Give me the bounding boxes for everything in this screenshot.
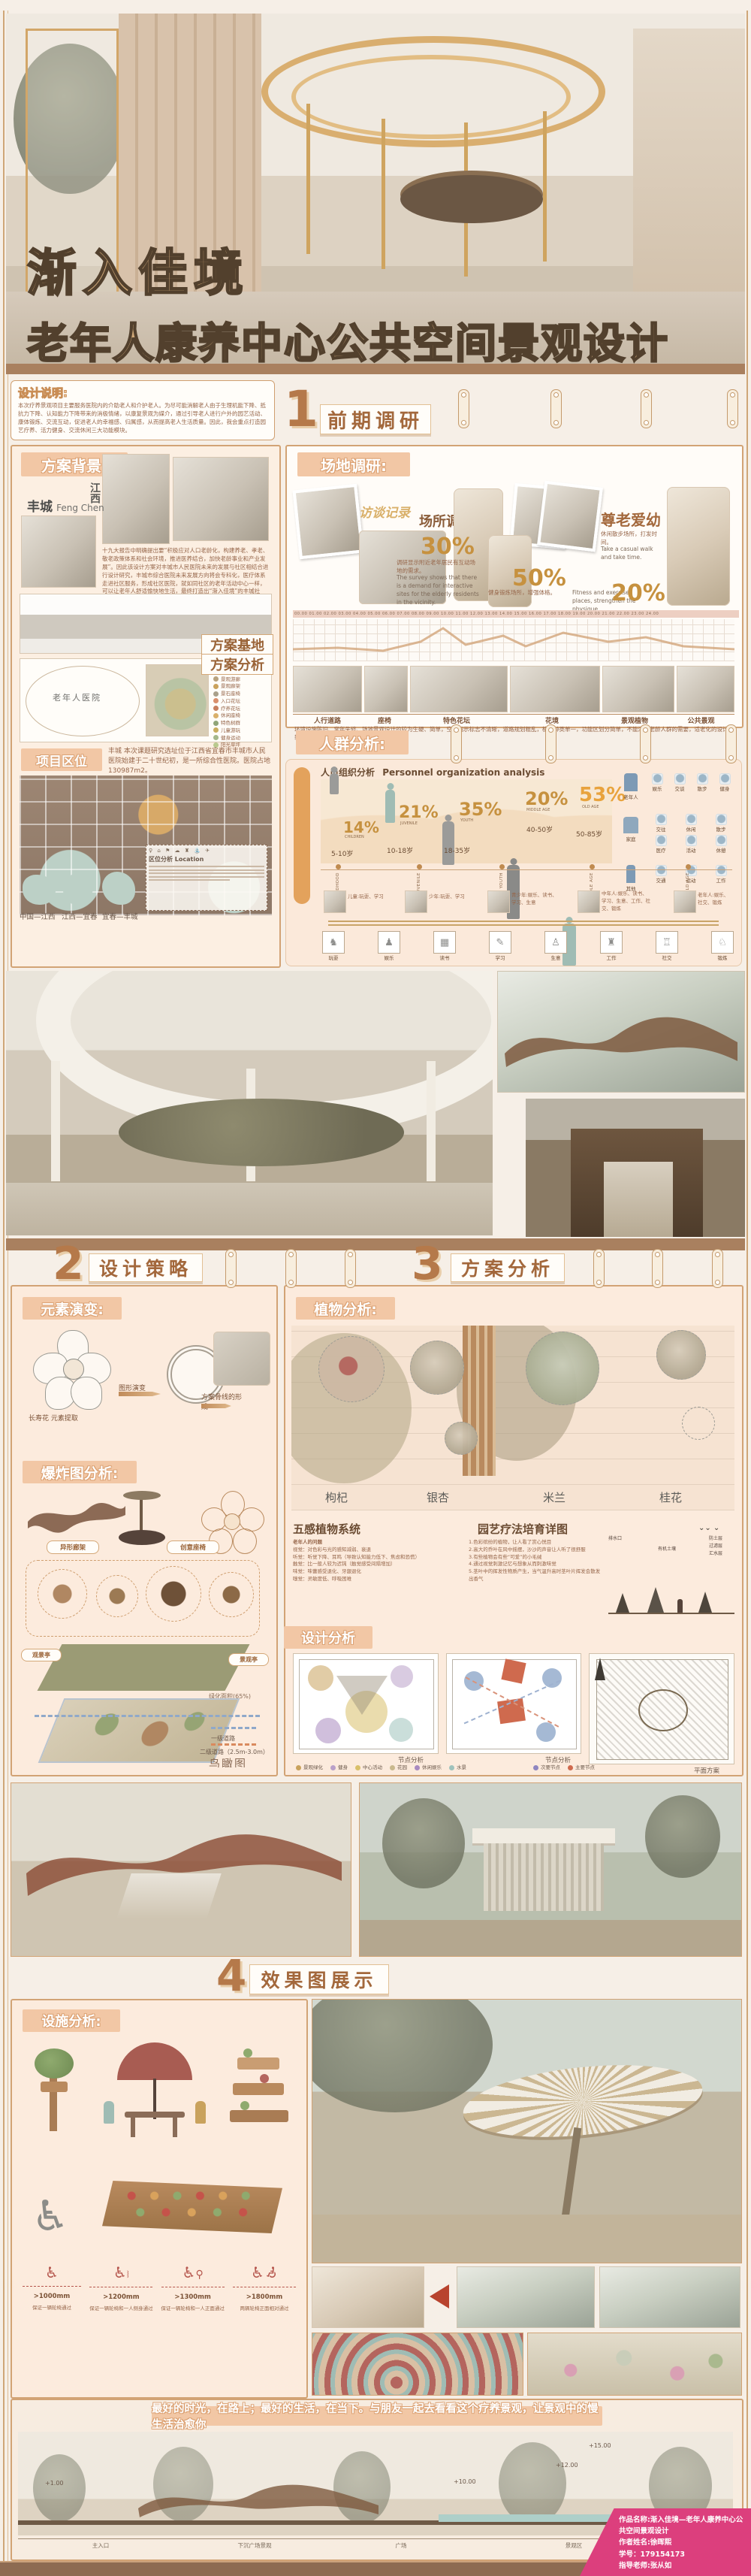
therapy-label: 防土层 [709,1534,722,1541]
strip-photo [364,666,408,712]
crowd-analysis-card: 人员组织分析 Personnel organization analysis 1… [285,759,742,966]
tree-glyph [647,1587,664,1613]
legend-text-lines [149,866,264,881]
flower-sketch [33,1330,111,1408]
senses-line: 触觉：比一般人较为迟钝（触觉感受间隔增加） [293,1561,463,1568]
two-wheelchair-icons: ♿♿ [230,2265,299,2281]
senses-line: 5.茎叶中的挥发性物质产生，当气温升高时茎叶片挥发会散发出香气 [469,1568,604,1583]
plan-caption-3: 平面方案 [694,1766,719,1775]
plaza-ground [312,2215,741,2263]
stage-en: YOUTH [499,872,504,888]
access-diagram-2: ♿⧘ >1200mm 保证一辆轮椅和一人侧身通过 [86,2265,155,2385]
section1-title: 前期调研 [320,404,431,434]
hero-planter [400,175,543,223]
icon-group-elderly: 老年人 [621,773,641,800]
divider-band [6,1238,745,1250]
activity-icon-cell: 活动 [677,835,705,854]
strap-decoration [345,1249,356,1288]
senses-left: 老年人的问题 视觉：对色彩与光的感知减弱、衰退 听觉：听觉下降、耳鸣（导致认知能… [293,1539,463,1583]
road-sample-2 [211,1743,256,1746]
render-thumb [599,2266,740,2328]
stage-desc: 少年:玩耍、学习 [429,893,471,901]
tree [382,1798,465,1888]
group-age: 50-85岁 [576,829,602,839]
site-plan-thumb [146,664,209,736]
province-label: 江西 [87,482,102,503]
group-age: 40-50岁 [526,824,553,834]
access-caption: 两辆轮椅正面相对通过 [230,2305,299,2313]
region-caption: 中国—江西 [20,911,56,921]
garden-thumb [312,2266,424,2328]
access-caption: 保证一辆轮椅和一人正面通过 [158,2305,228,2313]
strap-decoration [451,724,462,763]
plant-analysis-label: 植物分析: [296,1297,395,1320]
activity-icon-cell: 娱乐 [647,773,668,792]
interview-photo [292,484,363,559]
plant-photo-goji [318,1336,385,1402]
strap-decoration [545,724,556,763]
legend-item: 健身运动 [213,735,270,742]
elev-label: 广场 [326,2541,476,2550]
activity-icon-cell: 交谈 [669,773,690,792]
stage-dot [499,864,505,869]
location-label: 项目区位 [21,748,102,771]
left-arrow [430,2284,449,2308]
exploded-node [146,1566,201,1622]
figure-youth [442,821,454,865]
courtyard-floor [6,1183,493,1235]
strip-photo [677,666,734,712]
age-wave-band: 14% CHILDREN 5-10岁 21% JUVENILE 10-18岁 3… [321,779,612,863]
credit-advisor: 指导老师:张从如 [619,2560,745,2571]
poster-title-block: 渐入佳境 老年人康养中心公共空间景观设计 Gradually enter bli… [27,233,725,374]
senses-line: 3.有些植物会有些“可爱”的小毛绒 [469,1554,604,1562]
plant-name: 米兰 [494,1489,614,1505]
stat-20-zh: 休闲散步场所，打发时间。 [601,531,665,547]
poster-title-line1: 渐入佳境 [27,233,725,305]
courtyard-garden [119,1099,404,1166]
scheme-background-panel: 方案背景: 丰城 Feng Chen 江西 十九大报告中明确提出要“积极应对人口… [11,445,281,968]
social-icon [656,814,667,825]
therapy-label: 汇水层 [709,1550,722,1556]
street-photo [537,481,603,552]
fun-icon: ♟ [378,931,400,954]
site-survey-label: 场地调研: [297,452,410,476]
facility-panel: 设施分析: ♿ [11,1999,308,2399]
stage-dot [417,864,422,869]
zone-item: 中心活动 [355,1763,382,1770]
pavilion-label-2: 景观亭 [228,1653,269,1666]
zone-item: 健身 [330,1763,348,1770]
activity-icon-cell: 健身 [714,773,735,792]
legend-item: 景石座椅 [213,691,270,698]
activity-item: ♜工作 [600,931,623,961]
ground-line [608,1613,734,1614]
group-pct: 21% [399,803,439,822]
credit-author: 作者姓名:徐晖熙 [619,2537,745,2548]
icon-group-family: 家庭 [621,817,641,842]
birdseye-label: 鸟瞰图 [209,1755,247,1767]
stat-50-pct: 50% [512,565,566,591]
legend-item: 休闲座椅 [213,712,270,720]
strip-labels: 人行道路 座椅 特色花坛 花境 景观植物 公共景观 [293,715,734,725]
stat-50-zh: 健身锻炼场所，增强体格。 [488,589,571,597]
stage-desc: 青少年:娱乐、读书、学习、生意 [511,892,558,907]
senses-line: 1.色彩缤纷的植物，让人看了赏心悦目 [469,1539,604,1547]
stage-photo [324,890,346,913]
plan-analysis-panel: 植物分析: 枸杞 银杏 米兰 桂花 五感植物系统 老年人的问题 视觉：对色彩与光… [284,1285,743,1776]
strip-photo [602,666,674,712]
activity-icon-cell: 散步 [707,814,735,833]
zone-legend: 景观绿化 健身 中心活动 花园 休闲娱乐 水景 [296,1763,466,1770]
senses-line: 4.通过视觉刺激记忆与想象从而刺激味觉 [469,1561,604,1568]
design-note-label: 设计说明: [18,385,267,401]
plant-photo-milan [526,1332,599,1405]
activity-icon-cell: 交往 [647,814,675,833]
stage-desc: 儿童:玩耍、学习 [348,893,390,901]
wheelchair-vignette: ♿ [27,2154,95,2251]
stat-30-en: The survey shows that there is a demand … [397,574,481,607]
activity-item: ♟娱乐 [378,931,400,961]
primary-road [35,1715,260,1717]
activity-item: ♞玩耍 [322,931,345,961]
node-plan-1 [293,1653,439,1754]
section1-number: 1 [284,385,318,434]
section3-number: 3 [412,1241,443,1286]
plant-photo-ginkgo [410,1341,464,1395]
parasol-top [123,1491,161,1500]
birdseye-block: 观景亭 景观亭 绿化面积(65%) 一级道路 二级道路（2.5m-3.0m） 鸟… [20,1643,269,1767]
leisure-icon [686,814,697,825]
strap-decoration [727,389,738,428]
dimension-line [89,2287,152,2287]
figure-juvenile [385,790,395,823]
site-photo [21,516,96,588]
axon-layer [38,1644,250,1691]
strap-decoration [712,1249,723,1288]
zone-item: 水景 [449,1763,466,1770]
stat-20-pct: 20% [611,580,665,606]
plant-names: 枸杞 银杏 米兰 桂花 [291,1489,734,1505]
pavilion-label-1: 观景亭 [21,1649,62,1661]
strip-photo [293,666,362,712]
skeleton-plan-sketch [213,1332,270,1386]
event-icon [686,835,697,846]
business-icon: ♙ [544,931,567,954]
hero-pergola-ring-inner [291,55,571,139]
group-en: YOUTH [460,818,473,823]
legend-item: 入口花坛 [213,698,270,706]
site-photo [173,457,269,541]
level-mark: +1.00 [45,2480,64,2487]
play-icon: ♞ [322,931,345,954]
senses-line: 听觉：听觉下降、耳鸣（导致认知能力低下、焦虑和恐慌） [293,1554,463,1562]
red-pergola-shape [11,1783,351,1956]
poster-root: 渐入佳境 老年人康养中心公共空间景观设计 Gradually enter bli… [0,0,751,2576]
stage-photo [405,890,427,913]
access-caption: 保证一辆轮椅通过 [20,2305,84,2312]
strap-decoration [458,389,469,428]
wavy-bench-shape [497,971,745,1093]
activity-graph-line [293,619,734,661]
strip-label: 人行道路 [293,715,362,725]
dimension-line [161,2287,225,2287]
region-shape-jiangxi [63,873,93,905]
canopy-render [312,1999,742,2263]
region-shape-china [23,875,56,905]
rest-icon [716,835,727,846]
group-pct: 35% [459,799,502,820]
entertain-icon [652,773,663,785]
site-photo [102,454,170,544]
stage-photo [578,890,600,913]
interview-label: 访谈记录 [359,502,410,521]
hero-render: 渐入佳境 老年人康养中心公共空间景观设计 Gradually enter bli… [6,14,745,374]
strategy-panel: 元素演变: 长寿花 元素提取 图形演变 方案骨线的形成 爆炸图分析: [11,1285,278,1776]
empty-circle [682,1407,715,1440]
region-caption: 宜春—丰城 [102,911,138,921]
parasol-pole [140,1494,143,1534]
strap-decoration [550,389,562,428]
birds-glyph: ⌄⌄ ⌄ [698,1524,719,1532]
chat-icon [674,773,686,785]
therapy-label: 排水口 [608,1534,622,1541]
elev-label: 主入口 [18,2541,183,2550]
road1-label: 一级道路 [211,1734,235,1743]
activity-item: ♙生意 [544,931,567,961]
senses-title: 五感植物系统 [293,1521,360,1537]
strip-label: 景观植物 [598,715,671,725]
region-caption: 江西—宜春 [62,911,98,921]
activity-icon-cell: 医疗 [647,835,675,854]
location-legend-box: ♀ ⌂ ⚑ ☁ ♜ ⛲ ✈ 区位分析 Location [146,845,267,911]
strip-label: 公共景观 [671,715,731,725]
bubble-center-label: 老年人医院 [53,691,101,703]
tree-glyph [616,1593,629,1613]
flower-garden-render [527,2333,742,2396]
road-sample-1 [211,1727,256,1729]
step3-caption: 方案骨线的形成 [201,1392,246,1411]
walk-icon [697,773,708,785]
access-dim: >1000mm [20,2293,84,2300]
exploded-node [38,1569,87,1619]
strip-photo [510,666,600,712]
strap-decoration [641,389,652,428]
base-label: 方案基地 [201,634,273,655]
crowd-analysis-label: 人群分析: [296,730,409,754]
courtyard-column [51,1061,60,1181]
hero-bottom-band [6,364,745,374]
plant-photo-small [445,1422,478,1455]
facility-analysis-label: 设施分析: [23,2009,120,2032]
plant-name: 银杏 [382,1489,494,1505]
strap-decoration [593,1249,605,1288]
site-photo-strip [293,666,734,712]
step1-caption: 长寿花 元素提取 [29,1413,78,1423]
site-survey-panel: 场地调研: 访谈记录 场所调研 30% 调研显示附近老年居民有互动场地的需求。 … [285,445,743,728]
org-analysis-title: 人员组织分析 Personnel organization analysis [321,766,544,779]
group-pct: 14% [343,818,379,836]
ribbed-canopy [460,2055,706,2148]
flow-connector [328,924,719,926]
wheelchair-icon: ♿ [20,2265,84,2280]
family-icon [623,817,638,833]
stage-photo [487,890,510,913]
level-mark: +15.00 [589,2442,611,2449]
flow-connector [328,921,719,922]
render-thumb [457,2266,595,2328]
zone-item: 休闲娱乐 [415,1763,442,1770]
group-pct: 20% [525,788,568,809]
bench-render [497,971,745,1093]
activity-item: ♘锻炼 [711,931,734,961]
umbrella-vignette [95,2042,215,2140]
tree-glyph [698,1592,712,1613]
elderly-activity-icons: 娱乐 交谈 散步 健身 [647,773,735,792]
study-icon: ✎ [489,931,511,954]
activity-icon-cell: 散步 [692,773,713,792]
strap-decoration [652,1249,663,1288]
stage-desc: 老年人:娱乐、社交、锻炼 [698,892,732,907]
left-frame-line [3,11,5,2561]
access-diagram-1: ♿ >1000mm 保证一辆轮椅通过 [20,2265,84,2385]
analysis-label: 方案分析 [201,654,273,675]
group-en: CHILDREN [345,835,364,839]
activity-row: ♞玩耍 ♟娱乐 ▦读书 ✎学习 ♙生意 ♜工作 ♖社交 ♘锻炼 [322,931,734,961]
node-item: 主要节点 [568,1763,595,1770]
legend-item: 特色树群 [213,720,270,727]
access-dim: >1200mm [86,2293,155,2301]
therapy-label: 有机土壤 [658,1545,676,1552]
access-dim: >1300mm [158,2293,228,2301]
plant-photo-osmanthus [656,1330,706,1380]
location-body: 丰城 本次课题研究选址位于江西省宜春市丰城市人民医院始建于二十世纪初，是一所综合… [108,747,272,776]
design-note: 设计说明: 本次疗养景观项目主要服务医院内的介助老人和介护老人。为尽可能消解老人… [11,380,275,440]
group-en: MIDDLE AGE [526,808,550,812]
senses-line: 2.高大的乔叶在风中摇摆，沙沙的声音让人听了很舒服 [469,1547,604,1554]
node-item: 次要节点 [533,1763,560,1770]
design-note-body: 本次疗养景观项目主要服务医院内的介助老人和介护老人。为尽可能消解老人由于生理机能… [18,402,267,435]
respect-label: 尊老爱幼 [601,508,661,530]
elev-label: 下沉广场景观 [183,2541,326,2550]
person-glyph [677,1599,683,1613]
man-with-dog-cutout [667,487,730,606]
fitness-icon [719,773,731,785]
group-age: 18-35岁 [444,845,470,855]
senses-line: 老年人的问题 [293,1539,463,1547]
corridor-inner [604,1162,673,1237]
therapy-title: 园艺疗法培育详图 [478,1521,568,1537]
corridor-render [526,1099,745,1237]
right-frame-line [746,11,748,2561]
stage-dot [590,864,595,869]
pavilion-roof [472,1828,615,1843]
callout-seat: 创意座椅 [167,1540,219,1554]
element-evolution-label: 元素演变: [23,1297,122,1320]
credit-student-id: 学号：179154173 [619,2549,745,2560]
hero-pergola-post [306,104,310,254]
elderly-icon [624,773,638,791]
strap-decoration [285,1249,297,1288]
stage-dot [336,864,341,869]
social-box-icon: ♖ [656,931,678,954]
stage-photo [674,890,696,913]
arrow-right [201,1404,231,1408]
senses-right: 1.色彩缤纷的植物，让人看了赏心悦目 2.高大的乔叶在风中摇摆，沙沙的声音让人听… [469,1539,604,1583]
plaza-render [11,1782,351,1957]
icon-group-label: 家庭 [621,835,641,842]
dimension-line [233,2287,296,2287]
plant-name: 枸杞 [291,1489,382,1505]
strip-label: 花境 [506,715,598,725]
dimension-line [23,2286,81,2287]
strap-decoration [725,724,737,763]
exploded-analysis-label: 爆炸图分析: [23,1461,137,1483]
senses-line: 嗅觉：灵敏度低、呼吸困难 [293,1576,463,1583]
activity-graph [293,619,734,661]
family-activity-icons: 交往 休闲 散步 医疗 活动 休憩 [647,814,735,854]
wheelchair-person-icons: ♿⚲ [158,2265,228,2281]
activity-icon-cell: 休闲 [677,814,705,833]
poster-title-line2: 老年人康养中心公共空间景观设计 [27,310,725,370]
figure-child [330,773,339,794]
pergola-mini [24,1495,129,1533]
canopy-support [562,2127,582,2218]
card-accent-bar [294,767,310,904]
wheelchair-person-icons: ♿⧘ [86,2265,155,2281]
access-diagram-3: ♿⚲ >1300mm 保证一辆轮椅和一人正面通过 [158,2265,228,2385]
icon-group-label: 老年人 [621,793,641,800]
zone-item: 景观绿化 [296,1763,323,1770]
city-en: Feng Chen [56,503,104,513]
group-pct-old: 53% [579,784,626,806]
region-maps: 中国—江西 江西—宜春 宜春—丰城 [20,867,140,957]
elevation-pergola [131,2478,386,2523]
credit-work-title: 作品名称:渐入佳境—老年人康养中心公共空间景观设计 [619,2514,745,2537]
group-age: 10-18岁 [387,845,413,855]
exploded-diagram: 异形廊架 创意座椅 [20,1491,269,1638]
group-en: JUVENILE [400,821,418,826]
access-diagram-4: ♿♿ >1800mm 两辆轮椅正面相对通过 [230,2265,299,2385]
section3-title: 方案分析 [451,1253,565,1282]
courtyard-column [427,1061,436,1181]
exploded-node [96,1575,138,1617]
stroll-icon [716,814,727,825]
level-mark: +12.00 [556,2462,578,2469]
legend-icons-row: ♀ ⌂ ⚑ ☁ ♜ ⛲ ✈ [149,848,264,854]
tree-canopy [312,1999,493,2112]
stage-dot [686,864,691,869]
activity-item: ▦读书 [433,931,456,961]
exercise-icon: ♘ [711,931,734,954]
org-title-zh: 人员组织分析 [321,767,375,778]
legend-item: 景观游廊 [213,676,270,684]
strap-decoration [640,724,651,763]
paving-render [312,2333,523,2396]
plant-name: 桂花 [614,1489,727,1505]
step2-caption: 图形演变 [119,1383,146,1392]
plant-band: 枸杞 银杏 米兰 桂花 [291,1326,734,1510]
arrow-right [119,1392,161,1396]
therapy-label: 过滤层 [709,1542,722,1549]
pavilion-deck [360,1920,741,1956]
medical-icon [656,835,667,846]
section2-number: 2 [53,1241,84,1286]
node-plan-2 [446,1653,581,1754]
level-mark: +10.00 [454,2478,476,2485]
section4-number: 4 [216,1954,246,1997]
read-icon: ▦ [433,931,456,954]
